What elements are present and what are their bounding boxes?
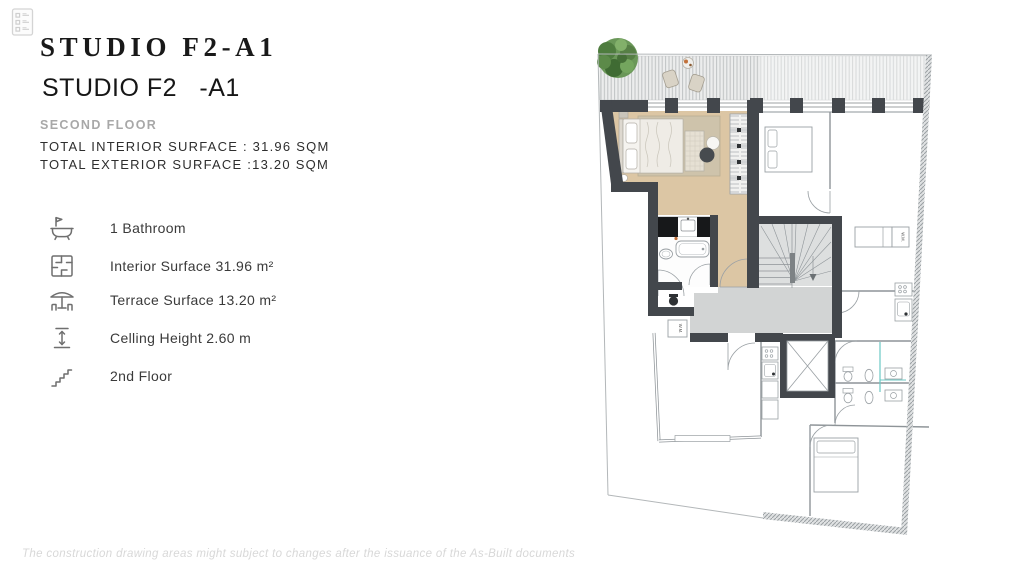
disclaimer-text: The construction drawing areas might sub…: [22, 548, 575, 560]
feature-label: Interior Surface 31.96 m²: [110, 258, 274, 274]
feature-label: Terrace Surface 13.20 m²: [110, 292, 276, 308]
page-title: STUDIO F2-A1: [40, 32, 277, 63]
bed: [619, 111, 683, 182]
wardrobe: [730, 114, 748, 194]
feature-floor-number: 2nd Floor: [46, 360, 172, 392]
feature-label: Celling Height 2.60 m: [110, 330, 251, 346]
feature-bathroom: 1 Bathroom: [46, 212, 186, 244]
stairs-icon: [46, 360, 78, 392]
total-interior-surface: TOTAL INTERIOR SURFACE : 31.96 SQM: [40, 139, 330, 154]
checklist-icon: [10, 6, 36, 38]
terrace-icon: [46, 284, 78, 316]
floor-plan: W.M.: [580, 30, 980, 550]
feature-label: 1 Bathroom: [110, 220, 186, 236]
feature-ceiling-height: Celling Height 2.60 m: [46, 322, 251, 354]
floor-label: SECOND FLOOR: [40, 118, 157, 132]
wm-label: W.M.: [901, 232, 906, 242]
feature-interior-surface: Interior Surface 31.96 m²: [46, 250, 274, 282]
hallway: [690, 287, 837, 333]
total-exterior-surface: TOTAL EXTERIOR SURFACE :13.20 SQM: [40, 157, 329, 172]
bathroom: [658, 237, 710, 287]
terrace-deck: [600, 56, 930, 100]
feature-label: 2nd Floor: [110, 368, 172, 384]
pouf-dark: [700, 148, 715, 163]
ceiling-height-icon: [46, 322, 78, 354]
pouf-light: [707, 137, 720, 150]
feature-terrace-surface: Terrace Surface 13.20 m²: [46, 284, 276, 316]
page-subtitle: STUDIO F2 -A1: [42, 74, 240, 103]
elevator: [780, 334, 835, 398]
floorplan-icon: [46, 250, 78, 282]
wm-label: W.M.: [678, 324, 683, 334]
bathtub-icon: [46, 212, 78, 244]
kitchen-counter: [658, 217, 710, 237]
